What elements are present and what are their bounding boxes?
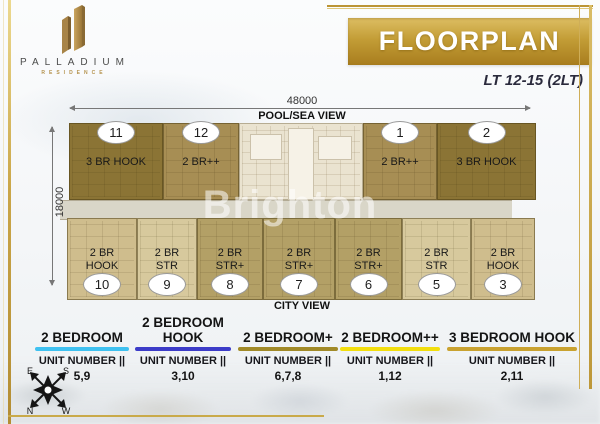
- unit-type-label: 2 BRSTR+: [198, 247, 262, 273]
- legend-unit-number-label: UNIT NUMBER ||: [140, 355, 226, 367]
- legend-color-bar: [340, 347, 440, 351]
- legend-title: 2 BEDROOM++: [341, 311, 439, 345]
- compass-e: E: [27, 366, 33, 376]
- unit-2: 2 3 BR HOOK: [437, 123, 536, 200]
- pool-sea-view-label: POOL/SEA VIEW: [202, 110, 402, 122]
- unit-10: 2 BRHOOK 10: [67, 218, 137, 300]
- unit-number-badge: 6: [350, 273, 388, 296]
- frame-line-right-inner: [579, 5, 580, 389]
- legend-title: 2 BEDROOM HOOK: [133, 311, 233, 345]
- unit-type-label: 2 BR++: [364, 156, 436, 169]
- unit-type-label: 2 BRHOOK: [472, 247, 534, 273]
- unit-number: 9: [163, 277, 170, 292]
- dimension-height-line: [52, 127, 53, 285]
- legend-unit-numbers: 1,12: [378, 369, 401, 383]
- legend-unit-number-label: UNIT NUMBER ||: [469, 355, 555, 367]
- unit-type-label: 2 BR++: [164, 156, 238, 169]
- legend-color-bar: [238, 347, 338, 351]
- legend-unit-numbers: 6,7,8: [275, 369, 302, 383]
- compass-rose-icon: E S N W: [22, 364, 74, 421]
- legend-item-2-bedroom-plus-plus: 2 BEDROOM++ UNIT NUMBER || 1,12: [337, 311, 443, 383]
- legend-unit-number-label: UNIT NUMBER ||: [347, 355, 433, 367]
- legend-unit-numbers: 5,9: [74, 369, 91, 383]
- unit-number-badge: 1: [381, 121, 419, 144]
- unit-number-badge: 11: [97, 121, 135, 144]
- compass-w: W: [62, 406, 71, 416]
- unit-3: 2 BRHOOK 3: [471, 218, 535, 300]
- dimension-height-label: 18000: [54, 178, 66, 226]
- legend-color-bar: [35, 347, 129, 351]
- unit-number-badge: 3: [484, 273, 522, 296]
- floorplan-banner: FLOORPLAN: [348, 18, 591, 65]
- unit-number-badge: 5: [418, 273, 456, 296]
- unit-number: 7: [295, 277, 302, 292]
- legend-title: 2 BEDROOM+: [243, 311, 333, 345]
- legend-unit-numbers: 3,10: [171, 369, 194, 383]
- dimension-width-line: [70, 108, 530, 109]
- unit-number: 1: [396, 125, 403, 140]
- legend-item-2-bedroom-plus: 2 BEDROOM+ UNIT NUMBER || 6,7,8: [235, 311, 341, 383]
- unit-8: 2 BRSTR+ 8: [197, 218, 263, 300]
- elevator-block: [318, 136, 352, 160]
- unit-number-badge: 2: [468, 121, 506, 144]
- unit-number-badge: 12: [182, 121, 220, 144]
- unit-11: 11 3 BR HOOK: [69, 123, 163, 200]
- unit-9: 2 BRSTR 9: [137, 218, 197, 300]
- unit-type-label: 2 BRSTR+: [336, 247, 401, 273]
- legend-item-2-bedroom-hook: 2 BEDROOM HOOK UNIT NUMBER || 3,10: [133, 311, 233, 383]
- legend-item-3-bedroom-hook: 3 BEDROOM HOOK UNIT NUMBER || 2,11: [442, 311, 582, 383]
- logo-subtitle: RESIDENCE: [10, 70, 134, 76]
- unit-number-badge: 10: [83, 273, 121, 296]
- unit-type-label: 2 BRSTR+: [264, 247, 334, 273]
- unit-type-label: 2 BRSTR: [403, 247, 470, 273]
- unit-7: 2 BRSTR+ 7: [263, 218, 335, 300]
- unit-number: 5: [433, 277, 440, 292]
- palladium-logo: PALLADIUM RESIDENCE: [10, 3, 134, 76]
- unit-type-label: 3 BR HOOK: [438, 156, 535, 169]
- frame-line-left-2: [3, 0, 4, 424]
- unit-number: 6: [365, 277, 372, 292]
- unit-type-label: 3 BR HOOK: [70, 156, 162, 169]
- compass-s: S: [63, 366, 69, 376]
- brighton-watermark: Brighton: [165, 183, 415, 228]
- logo-name: PALLADIUM: [10, 57, 134, 68]
- floorplan-flyer: PALLADIUM RESIDENCE FLOORPLAN LT 12-15 (…: [0, 0, 600, 424]
- dimension-width-label: 48000: [272, 95, 332, 107]
- banner-title: FLOORPLAN: [379, 26, 561, 57]
- frame-line-top-2: [327, 8, 593, 9]
- legend-color-bar: [447, 347, 577, 351]
- unit-number-badge: 9: [148, 273, 186, 296]
- frame-line-left: [8, 0, 11, 424]
- legend-color-bar: [135, 347, 231, 351]
- unit-type-label: 2 BRHOOK: [68, 247, 136, 273]
- frame-line-top: [327, 5, 593, 7]
- unit-5: 2 BRSTR 5: [402, 218, 471, 300]
- unit-number: 2: [483, 125, 490, 140]
- frame-line-right-outer: [589, 5, 592, 389]
- level-label: LT 12-15 (2LT): [484, 72, 583, 89]
- building-logo-icon: [53, 3, 91, 55]
- unit-number-badge: 7: [280, 273, 318, 296]
- legend-unit-number-label: UNIT NUMBER ||: [245, 355, 331, 367]
- legend-title: 3 BEDROOM HOOK: [449, 311, 575, 345]
- unit-number: 3: [499, 277, 506, 292]
- unit-number: 10: [95, 277, 109, 292]
- legend-unit-numbers: 2,11: [501, 369, 524, 383]
- compass-n: N: [27, 406, 34, 416]
- unit-type-label: 2 BRSTR: [138, 247, 196, 273]
- stairs-block: [250, 134, 282, 160]
- unit-6: 2 BRSTR+ 6: [335, 218, 402, 300]
- unit-number: 12: [194, 125, 208, 140]
- unit-number: 11: [109, 125, 123, 140]
- unit-number: 8: [226, 277, 233, 292]
- legend-title: 2 BEDROOM: [41, 311, 123, 345]
- unit-number-badge: 8: [211, 273, 249, 296]
